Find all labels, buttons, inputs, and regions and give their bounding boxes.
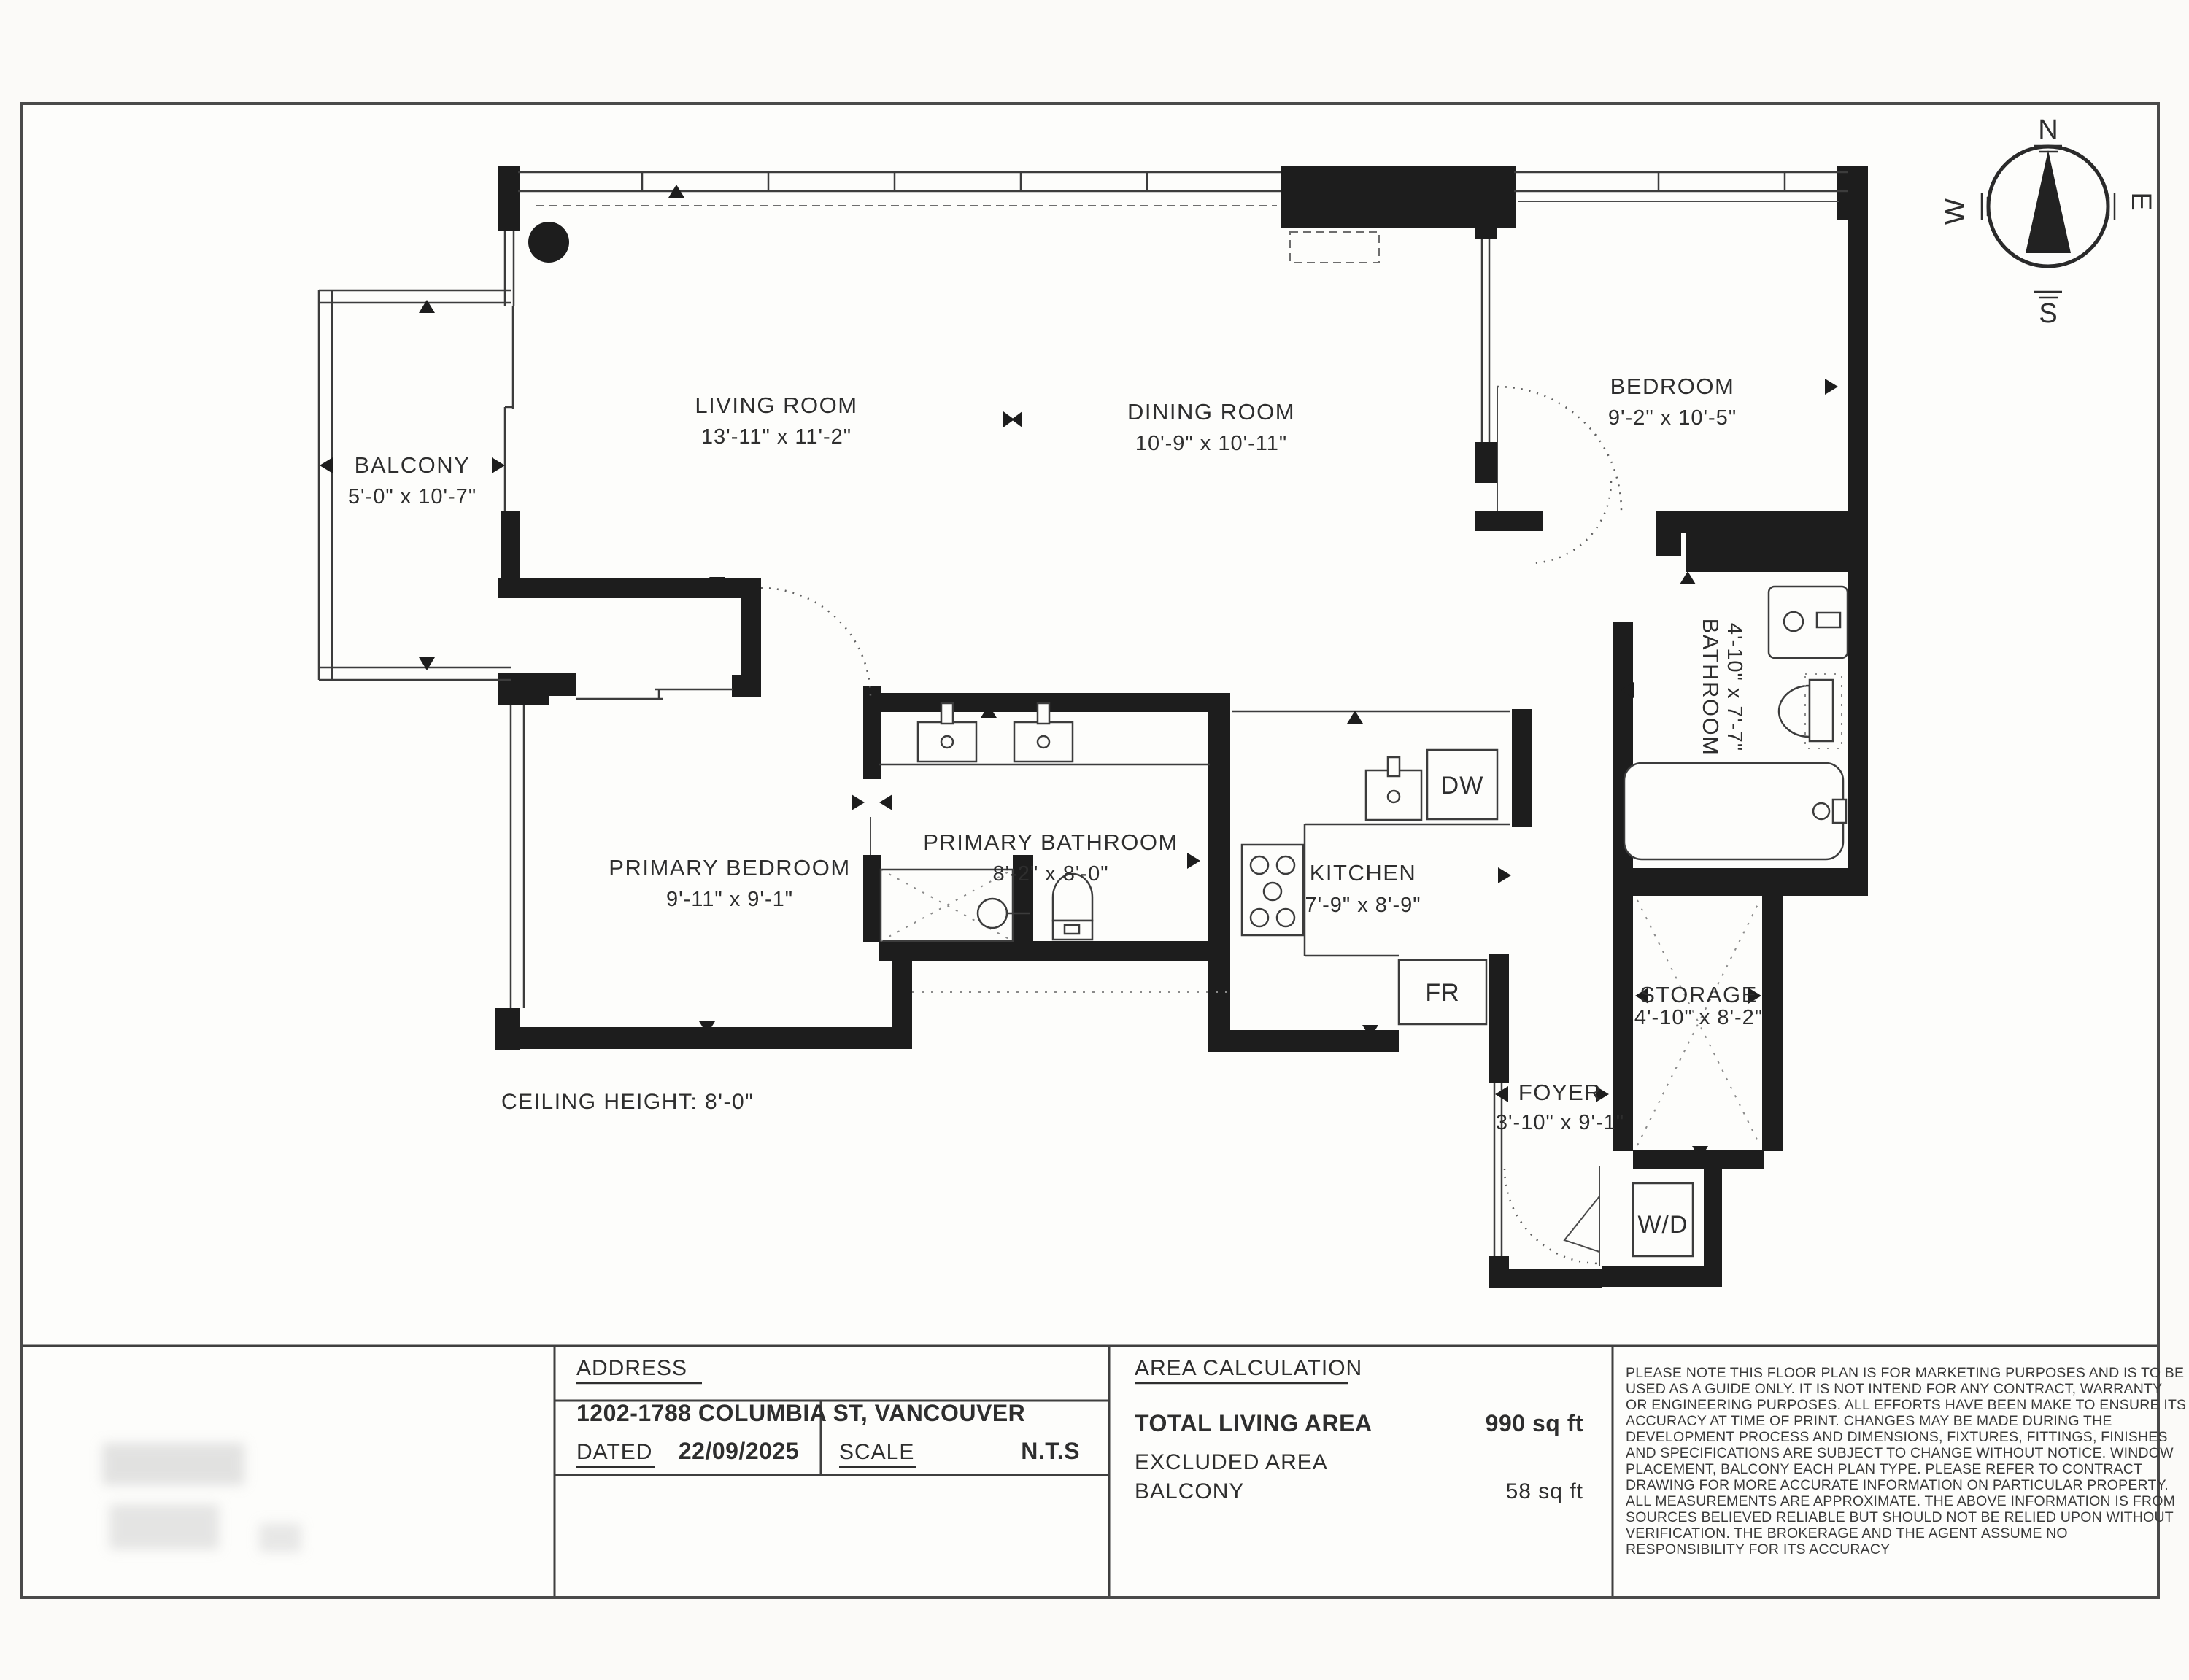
- room-label-foyer: FOYER: [1518, 1080, 1602, 1105]
- compass-east-label: E: [2126, 192, 2156, 210]
- washer-dryer-label: W/D: [1637, 1211, 1688, 1239]
- scale-value: N.T.S: [1021, 1438, 1080, 1464]
- disclaimer-line: AND SPECIFICATIONS ARE SUBJECT TO CHANGE…: [1626, 1445, 2174, 1461]
- room-dims-kitchen: 7'-9" x 8'-9": [1305, 894, 1421, 917]
- disclaimer-line: SOURCES BELIEVED RELIABLE BUT SHOULD NOT…: [1626, 1509, 2174, 1525]
- room-label-bathroom: BATHROOM: [1698, 619, 1723, 756]
- fridge-label: FR: [1425, 979, 1459, 1007]
- disclaimer-line: USED AS A GUIDE ONLY. IT IS NOT INTEND F…: [1626, 1381, 2162, 1397]
- excluded-area-label: EXCLUDED AREA: [1135, 1450, 1328, 1474]
- room-dims-bathroom: 4'-10" x 7'-7": [1723, 623, 1746, 751]
- cooktop: [1242, 845, 1303, 935]
- room-label-balcony: BALCONY: [355, 452, 471, 478]
- disclaimer-line: PLACEMENT, BALCONY EACH PLAN TYPE. PLEAS…: [1626, 1461, 2142, 1477]
- address-label: ADDRESS: [576, 1356, 687, 1380]
- address-value: 1202-1788 COLUMBIA ST, VANCOUVER: [576, 1400, 1025, 1426]
- scale-label: SCALE: [839, 1440, 914, 1464]
- room-dims-living: 13'-11" x 11'-2": [701, 425, 852, 449]
- room-dims-storage: 4'-10" x 8'-2": [1634, 1006, 1763, 1029]
- total-living-area-label: TOTAL LIVING AREA: [1135, 1410, 1373, 1436]
- disclaimer-line: OR ENGINEERING PURPOSES. ALL EFFORTS HAV…: [1626, 1397, 2186, 1413]
- disclaimer-line: DEVELOPMENT PROCESS AND DIMENSIONS, FIXT…: [1626, 1429, 2168, 1445]
- dated-value: 22/09/2025: [679, 1438, 799, 1464]
- disclaimer-line: RESPONSIBILITY FOR ITS ACCURACY: [1626, 1541, 1890, 1557]
- room-label-bedroom: BEDROOM: [1610, 373, 1735, 399]
- disclaimer-line: ALL MEASUREMENTS ARE APPROXIMATE. THE AB…: [1626, 1493, 2175, 1509]
- room-label-storage: STORAGE: [1640, 982, 1758, 1007]
- excluded-area-item: BALCONY: [1135, 1479, 1244, 1503]
- dated-label: DATED: [576, 1440, 652, 1464]
- bathroom-vanity: [1769, 587, 1848, 658]
- room-dims-primary-bedroom: 9'-11" x 9'-1": [666, 888, 793, 911]
- room-dims-dining: 10'-9" x 10'-11": [1135, 432, 1287, 455]
- ceiling-height-note: CEILING HEIGHT: 8'-0": [501, 1090, 754, 1114]
- compass-west-label: W: [1940, 198, 1971, 225]
- room-label-living: LIVING ROOM: [695, 392, 857, 418]
- room-label-kitchen: KITCHEN: [1310, 860, 1417, 886]
- room-dims-balcony: 5'-0" x 10'-7": [348, 485, 476, 508]
- structural-column: [528, 222, 569, 263]
- scanned-floor-plan-page: N S W E: [0, 0, 2189, 1680]
- bathtub: [1624, 763, 1846, 859]
- disclaimer-line: ACCURACY AT TIME OF PRINT. CHANGES MAY B…: [1626, 1413, 2112, 1429]
- compass-north-label: N: [2038, 115, 2058, 145]
- total-living-area-value: 990 sq ft: [1486, 1410, 1583, 1436]
- room-label-primary-bedroom: PRIMARY BEDROOM: [609, 855, 850, 880]
- area-calculation-heading: AREA CALCULATION: [1135, 1356, 1362, 1380]
- room-label-dining: DINING ROOM: [1127, 399, 1295, 425]
- room-dims-primary-bathroom: 8'-2" x 8'-0": [992, 862, 1108, 886]
- floor-plan-sheet: N S W E: [0, 0, 2189, 1680]
- disclaimer-line: DRAWING FOR MORE ACCURATE INFORMATION ON…: [1626, 1477, 2169, 1493]
- disclaimer-line: PLEASE NOTE THIS FLOOR PLAN IS FOR MARKE…: [1626, 1365, 2184, 1381]
- compass-south-label: S: [2039, 298, 2057, 329]
- room-dims-foyer: 3'-10" x 9'-1": [1496, 1111, 1624, 1134]
- room-label-primary-bathroom: PRIMARY BATHROOM: [923, 829, 1178, 855]
- dishwasher-label: DW: [1441, 772, 1484, 800]
- room-dims-bedroom: 9'-2" x 10'-5": [1608, 406, 1737, 430]
- excluded-area-value: 58 sq ft: [1506, 1479, 1583, 1503]
- disclaimer-line: VERIFICATION. THE BROKERAGE AND THE AGEN…: [1626, 1525, 2068, 1541]
